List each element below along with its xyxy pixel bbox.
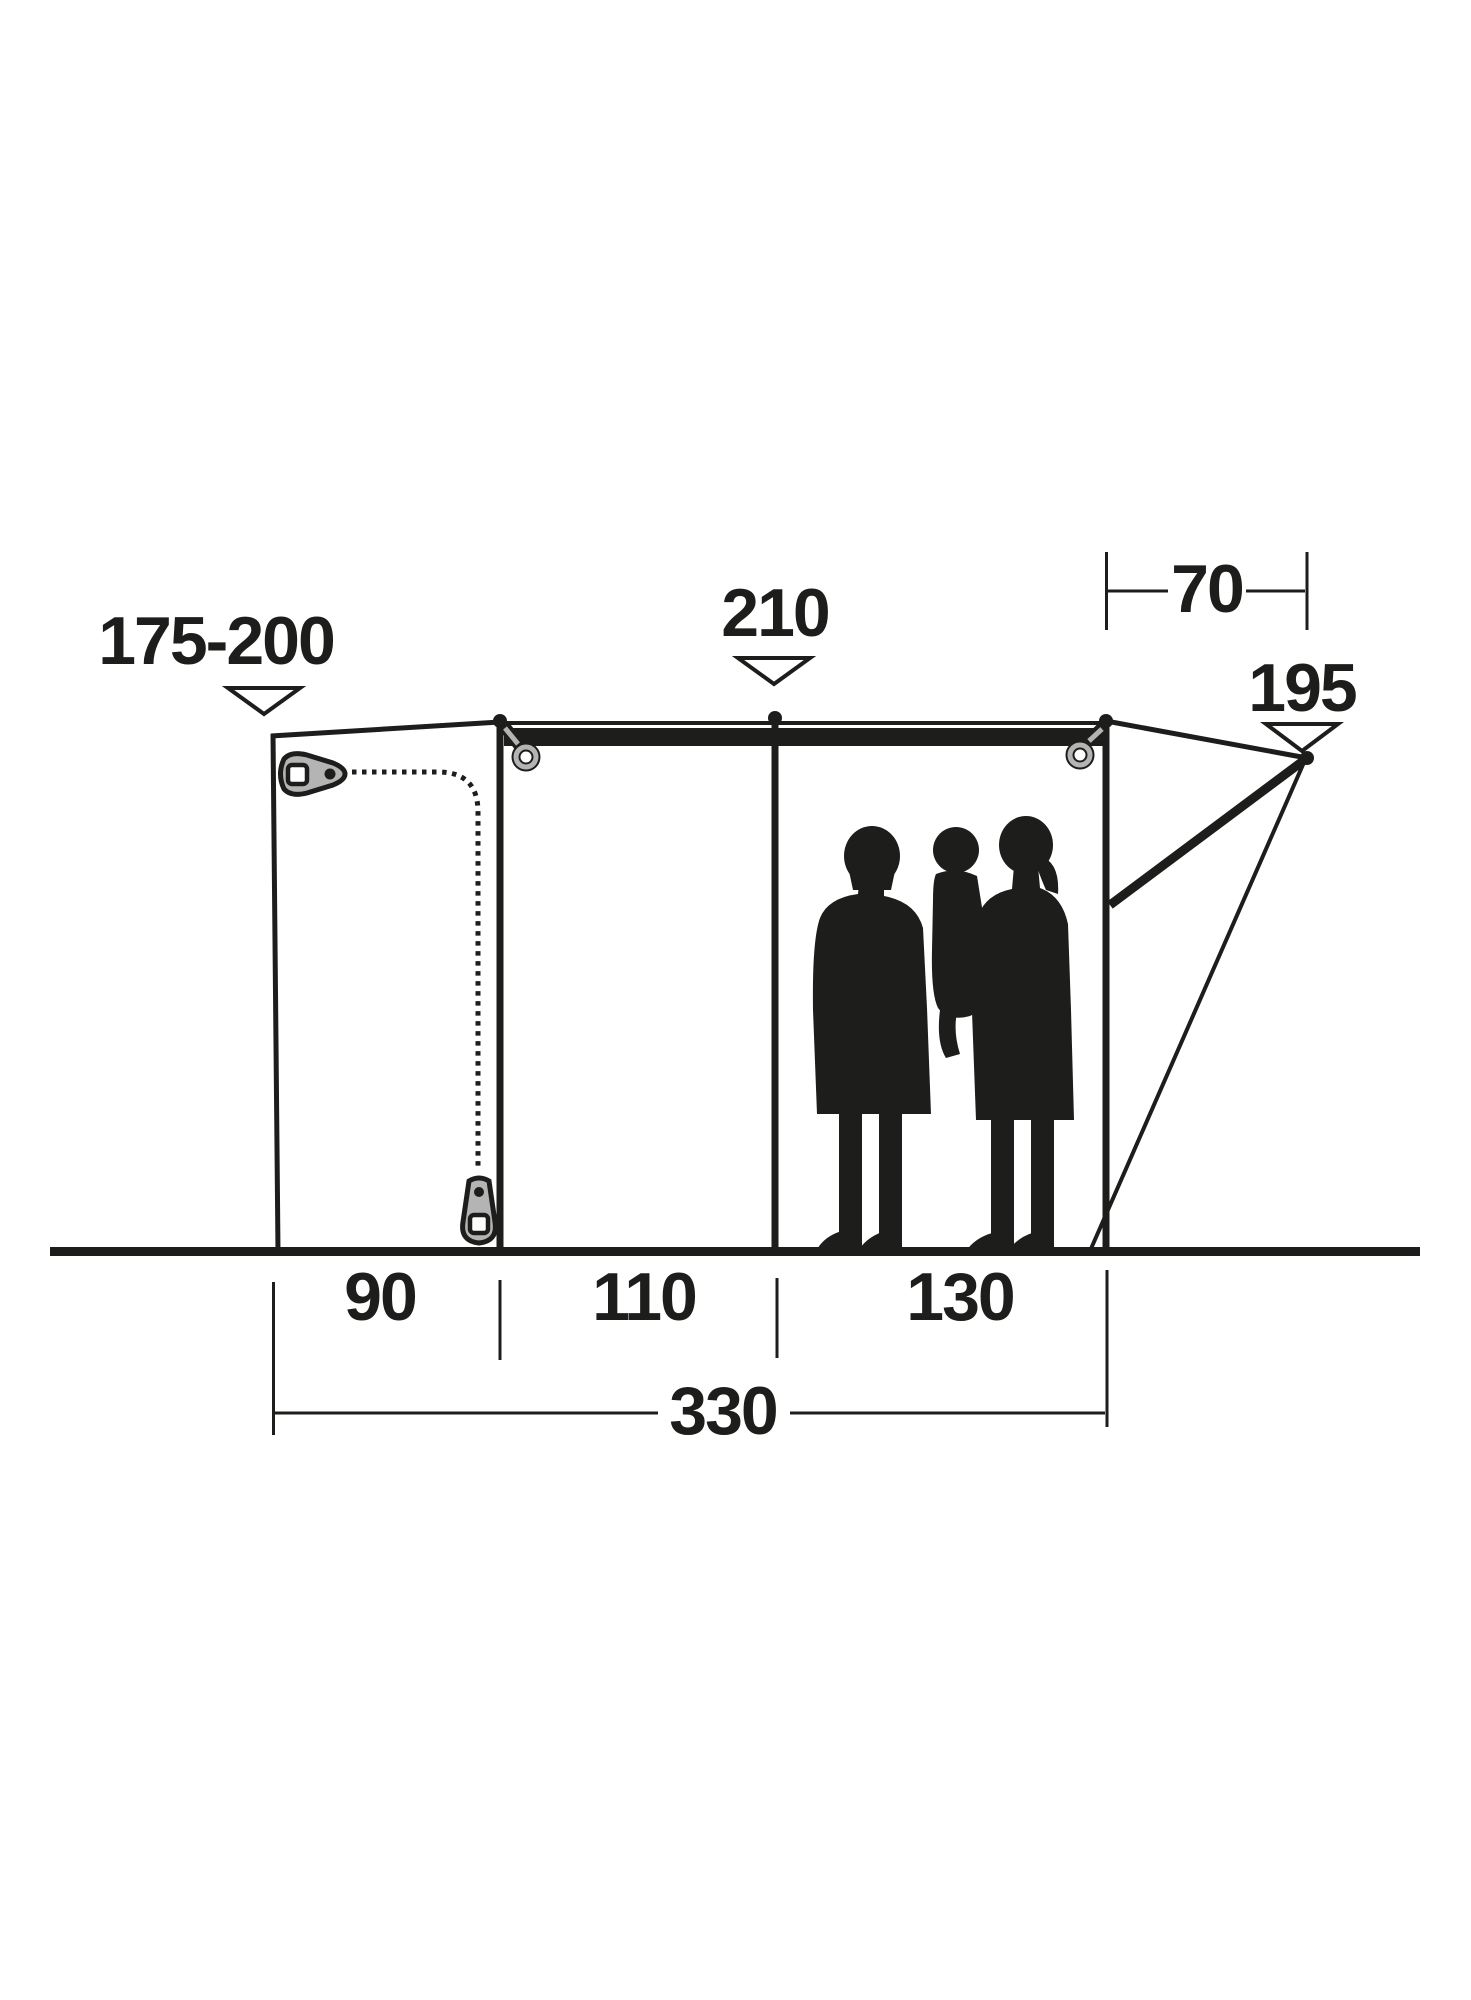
dim-label-canopy-depth: 70: [1171, 555, 1243, 623]
adult-left-leg: [879, 1108, 902, 1234]
triangle-down-marker: [228, 688, 300, 714]
centre-pole-cap: [768, 711, 782, 725]
adult-right-leg: [1031, 1114, 1054, 1236]
adult-left-body: [813, 872, 931, 1114]
dim-label-peak-height: 210: [721, 579, 828, 647]
canopy-brace-pole: [1110, 758, 1307, 905]
dim-label-section-middle: 110: [592, 1263, 696, 1331]
tent-rear-roof-slant: [271, 722, 500, 736]
triangle-down-marker: [738, 658, 810, 684]
child-head: [933, 827, 979, 873]
zipper-slider-icon: [281, 754, 346, 795]
dim-label-section-rear: 90: [344, 1263, 416, 1331]
tent-rear-edge: [273, 734, 278, 1251]
dim-label-front-height: 195: [1248, 654, 1355, 722]
dim-label-total-length: 330: [669, 1377, 776, 1445]
adult-left-leg: [839, 1108, 862, 1234]
dim-label-section-front: 130: [906, 1263, 1013, 1331]
zipper-track-dotted: [352, 772, 478, 1171]
diagram-linework: [0, 0, 1471, 2000]
ground-line: [50, 1247, 1420, 1256]
door-zipper: [281, 754, 496, 1243]
canopy-rear-edge: [1090, 760, 1305, 1251]
zipper-pull-icon: [463, 1178, 496, 1243]
adult-right-body: [972, 866, 1074, 1120]
adult-right-leg: [991, 1114, 1014, 1236]
triangle-down-marker: [1266, 724, 1338, 751]
family-silhouette: [813, 816, 1074, 1251]
dim-label-rear-height: 175-200: [98, 607, 334, 675]
tent-dimension-diagram: 175-200 210 70 195 90 110 130 330: [0, 0, 1471, 2000]
canopy: [1090, 721, 1314, 1251]
adult-right-foot: [966, 1230, 1014, 1251]
